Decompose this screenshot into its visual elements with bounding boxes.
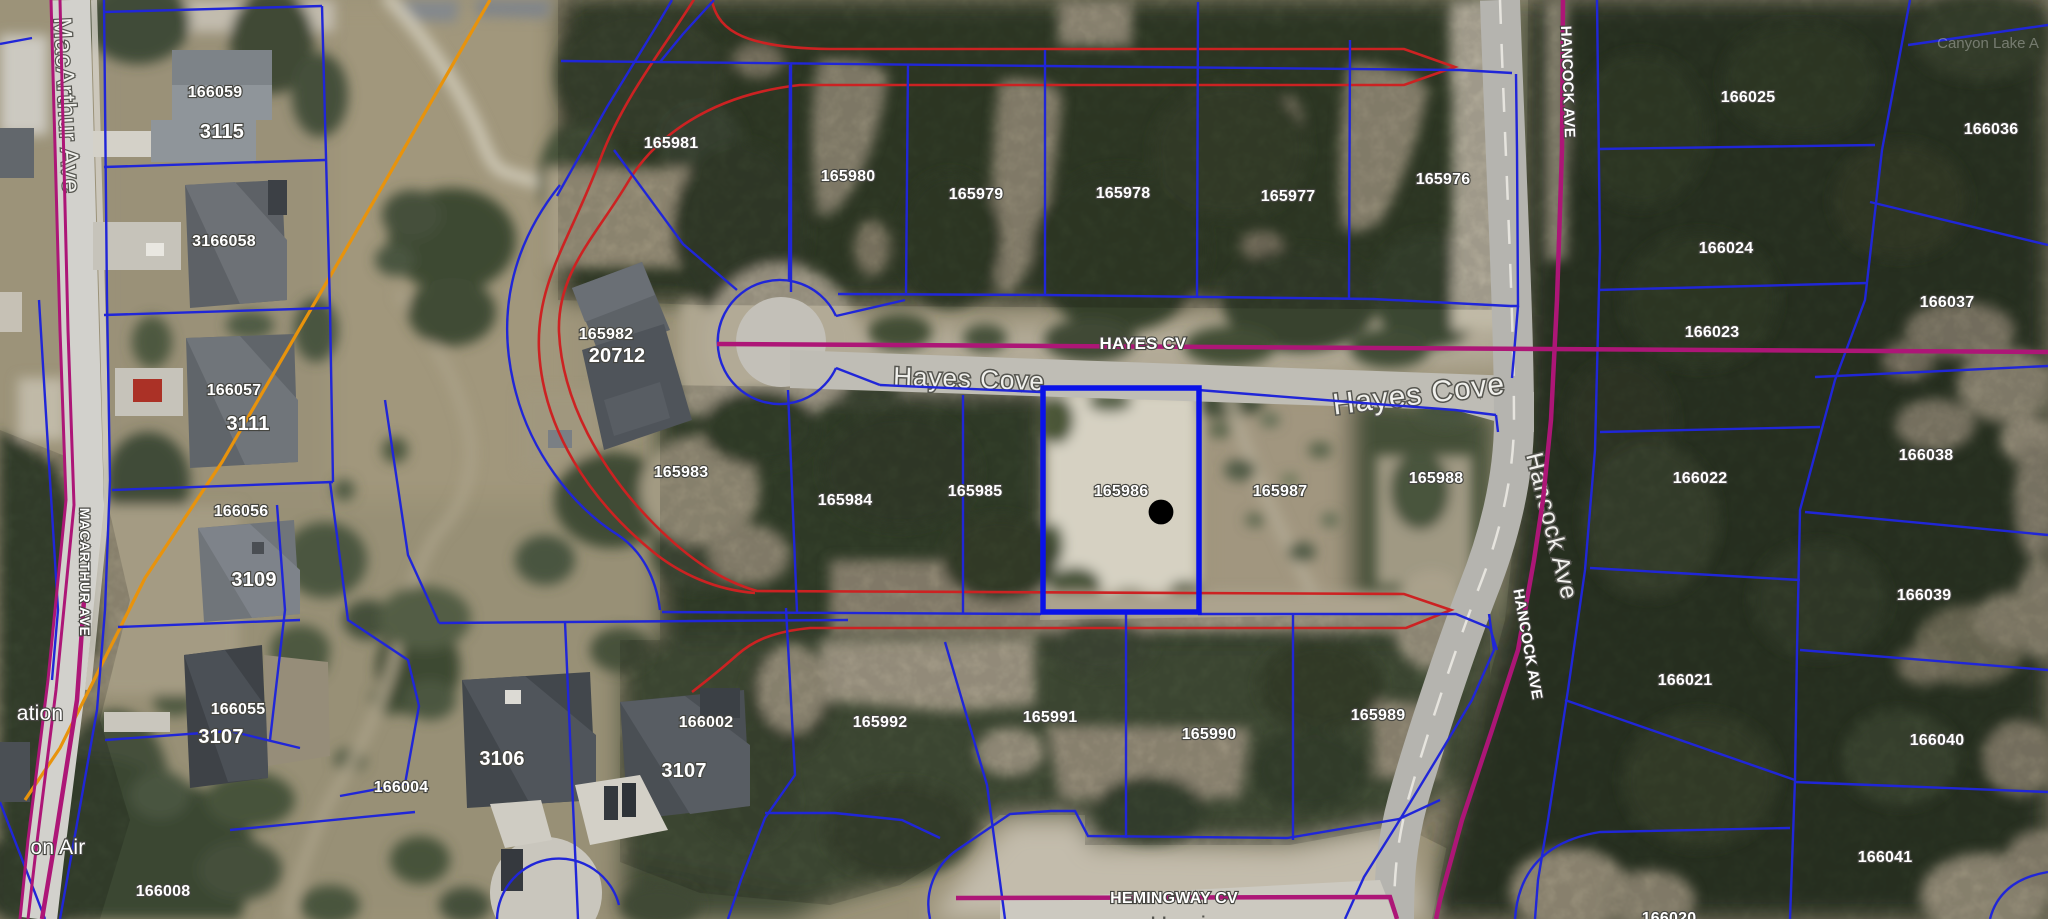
svg-text:165991: 165991 [1023, 709, 1078, 726]
svg-text:165988: 165988 [1409, 470, 1464, 487]
svg-text:165983: 165983 [654, 464, 709, 481]
svg-text:MACARTHUR AVE: MACARTHUR AVE [77, 508, 93, 637]
svg-text:166038: 166038 [1899, 447, 1954, 464]
svg-text:HAYES CV: HAYES CV [1100, 334, 1187, 353]
svg-text:166057: 166057 [207, 382, 262, 399]
svg-text:166055: 166055 [211, 701, 266, 718]
svg-text:165981: 165981 [644, 135, 699, 152]
svg-text:165992: 165992 [853, 714, 908, 731]
svg-text:166039: 166039 [1897, 587, 1952, 604]
svg-text:166021: 166021 [1658, 672, 1713, 689]
svg-text:165986: 165986 [1094, 483, 1149, 500]
svg-text:165976: 165976 [1416, 171, 1471, 188]
svg-text:HEMINGWAY CV: HEMINGWAY CV [1110, 890, 1238, 907]
svg-text:166041: 166041 [1858, 849, 1913, 866]
svg-text:165980: 165980 [821, 168, 876, 185]
svg-text:166056: 166056 [214, 503, 269, 520]
svg-text:20712: 20712 [589, 345, 646, 367]
svg-text:3107: 3107 [198, 726, 243, 748]
svg-text:3106: 3106 [479, 748, 524, 770]
svg-text:166025: 166025 [1721, 89, 1776, 106]
svg-text:166004: 166004 [374, 779, 429, 796]
svg-text:165984: 165984 [818, 492, 873, 509]
svg-text:3107: 3107 [661, 760, 706, 782]
svg-text:ation: ation [17, 702, 64, 725]
svg-text:166022: 166022 [1673, 470, 1728, 487]
svg-text:165990: 165990 [1182, 726, 1237, 743]
svg-text:165979: 165979 [949, 186, 1004, 203]
svg-text:165977: 165977 [1261, 188, 1316, 205]
svg-text:166037: 166037 [1920, 294, 1975, 311]
svg-text:3115: 3115 [200, 121, 244, 143]
svg-text:3109: 3109 [231, 569, 276, 591]
svg-text:166036: 166036 [1964, 121, 2019, 138]
svg-text:165982: 165982 [579, 326, 634, 343]
svg-text:166059: 166059 [188, 84, 243, 101]
svg-text:Canyon Lake A: Canyon Lake A [1937, 35, 2039, 52]
svg-text:166040: 166040 [1910, 732, 1965, 749]
svg-text:165987: 165987 [1253, 483, 1308, 500]
svg-text:165985: 165985 [948, 483, 1003, 500]
svg-text:166002: 166002 [679, 714, 734, 731]
svg-text:Hemingway: Hemingway [1150, 912, 1275, 919]
svg-text:166023: 166023 [1685, 324, 1740, 341]
svg-text:166020: 166020 [1642, 910, 1697, 919]
svg-text:166024: 166024 [1699, 240, 1754, 257]
svg-text:166008: 166008 [136, 883, 191, 900]
svg-text:165989: 165989 [1351, 707, 1406, 724]
svg-text:165978: 165978 [1096, 185, 1151, 202]
svg-text:3166058: 3166058 [192, 233, 256, 250]
svg-text:on Air: on Air [31, 836, 86, 859]
svg-text:3111: 3111 [226, 413, 269, 435]
